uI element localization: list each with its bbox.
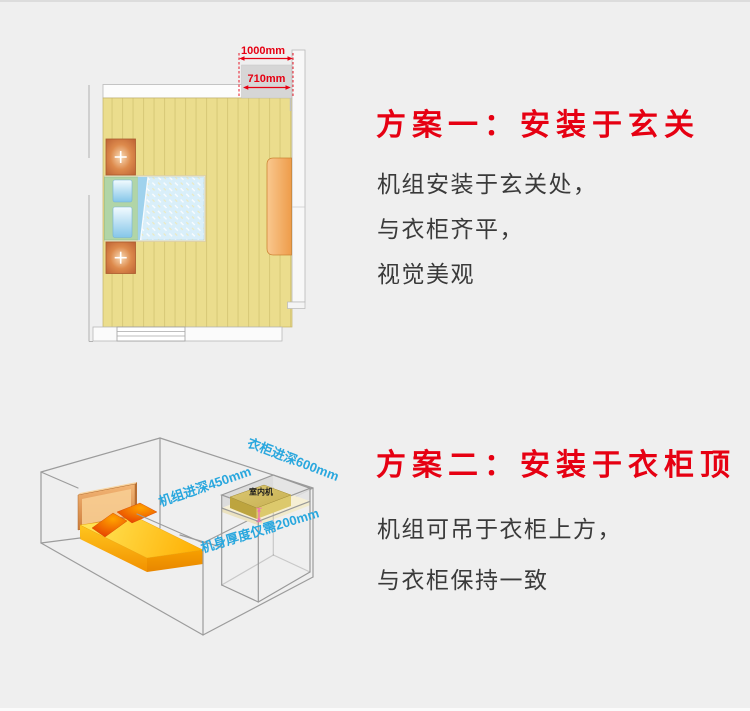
plan1-title: 方案一：安装于玄关: [376, 100, 700, 144]
plan2-description: 机组可吊于衣柜上方， 与衣柜保持一致: [377, 504, 622, 606]
pillow: [113, 180, 132, 202]
dim-label-710mm: 710mm: [248, 73, 286, 85]
isometric-room-diagram: 室内机 衣柜进深600mm 机组进深450mm 机身厚度仅需200mm: [30, 425, 370, 655]
plan1-description: 机组安装于玄关处， 与衣柜齐平， 视觉美观: [377, 162, 598, 297]
nightstand-top: [106, 139, 136, 175]
plan2-title: 方案二：安装于衣柜顶: [376, 440, 736, 484]
dim-label-1000mm: 1000mm: [241, 45, 285, 57]
top-edge-divider: [0, 0, 750, 2]
plan1-description-line: 与衣柜齐平，: [377, 207, 598, 252]
indoor-unit-label: 室内机: [249, 487, 273, 497]
outer-wall-lines: [89, 85, 93, 342]
pillow: [113, 207, 132, 238]
plan1-description-line: 机组安装于玄关处，: [377, 162, 598, 207]
wardrobe-plan: [267, 158, 292, 255]
blanket: [138, 177, 204, 240]
floor-plan-diagram: 1000mm 710mm: [80, 40, 315, 350]
plan1-description-line: 视觉美观: [377, 252, 598, 297]
label-wardrobe-depth: 衣柜进深600mm: [245, 435, 341, 484]
bed-plan: [105, 176, 206, 242]
window: [117, 327, 185, 341]
plan2-description-line: 与衣柜保持一致: [377, 555, 622, 606]
plan2-description-line: 机组可吊于衣柜上方，: [377, 504, 622, 555]
promo-infographic: 1000mm 710mm 方案一：安装于玄关 机组安装于玄关处， 与衣柜齐平， …: [0, 0, 750, 711]
nightstand-bottom: [106, 242, 136, 274]
